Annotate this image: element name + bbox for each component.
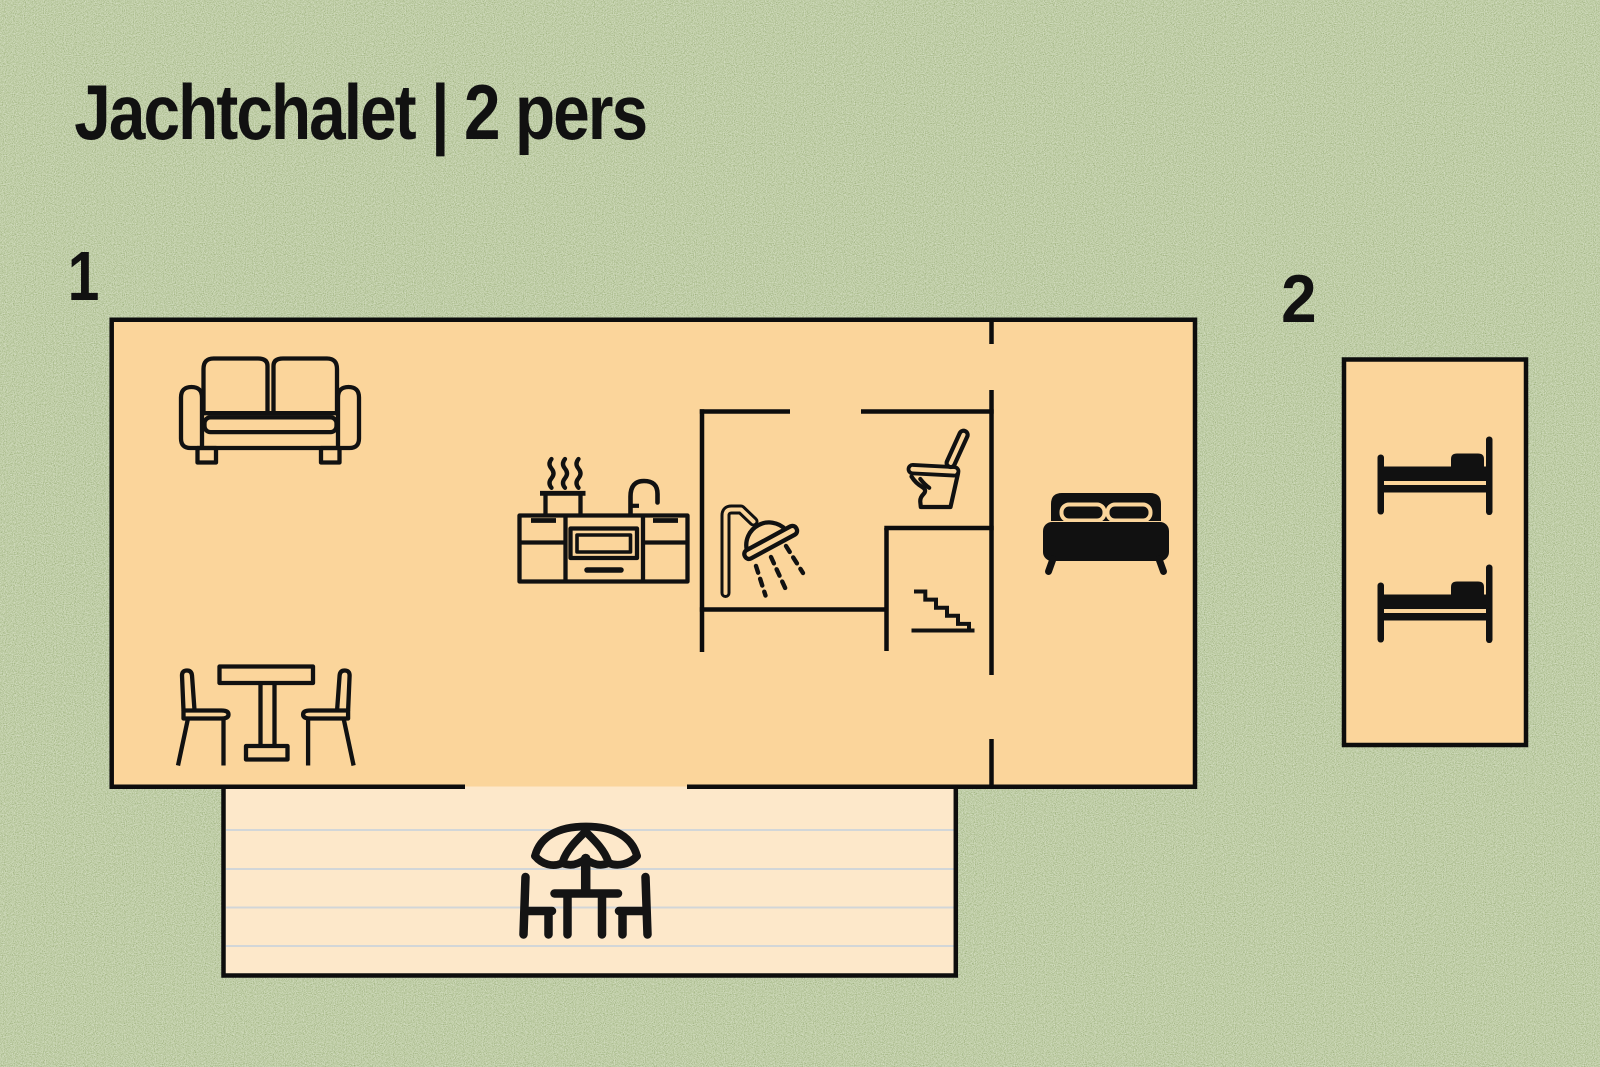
svg-text:2: 2 (1281, 260, 1316, 336)
svg-text:Jachtchalet | 2 pers: Jachtchalet | 2 pers (74, 70, 646, 156)
svg-text:1: 1 (68, 236, 100, 315)
